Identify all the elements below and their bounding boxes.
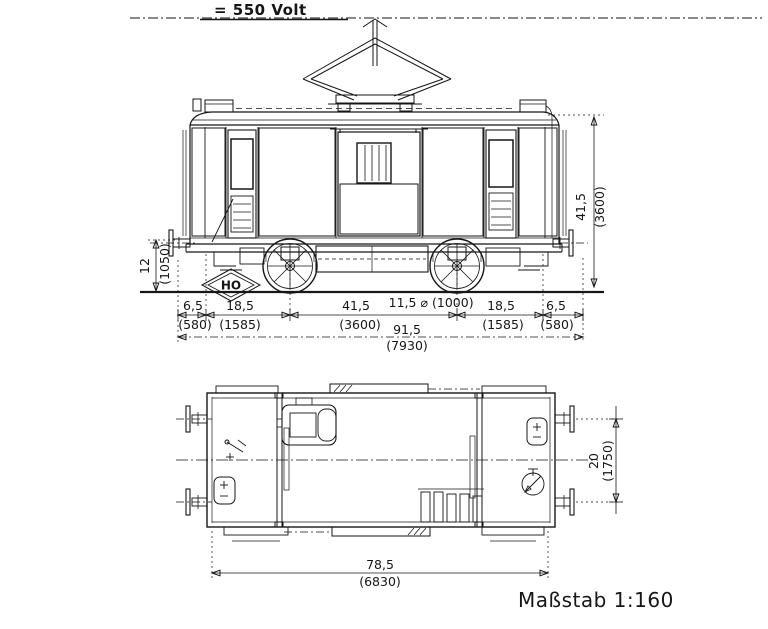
drawing-page: = 550 Volt [0, 0, 768, 629]
window-bars [365, 145, 386, 181]
left-end-door [228, 130, 256, 238]
dimension-chain-bottom: 6,5 (580) 18,5 (1585) 41,5 (3600) 11,5 ⌀… [178, 254, 583, 342]
dim-wheel-diameter-proto: (1000) [432, 295, 474, 310]
dim-overhang-left-model: 6,5 [183, 298, 203, 313]
controller [225, 440, 246, 461]
footboard-top-right [482, 386, 546, 393]
dim-buffer-height-model: 12 [137, 258, 152, 274]
dim-overhang-right-proto: (580) [540, 317, 574, 332]
seat-left [214, 477, 235, 504]
roof-stack [193, 99, 201, 111]
handbrake-wheel [522, 469, 544, 495]
end-downpipe [546, 106, 552, 238]
dim-body-height-model: 41,5 [573, 193, 588, 221]
dim-buffer-height-proto: (1050) [157, 243, 172, 285]
plan-buffer-right-bottom [555, 489, 574, 515]
step-right [524, 252, 548, 266]
dim-overall-length-model: 91,5 [393, 322, 421, 337]
ho-logo-text: HO [221, 279, 241, 293]
dim-end-axle-left-proto: (1585) [219, 317, 261, 332]
pantograph [303, 19, 451, 111]
dim-overhang-right-model: 6,5 [546, 298, 566, 313]
car-body-side [183, 99, 566, 252]
sliding-door-top [330, 384, 480, 393]
footboard-top-left [216, 386, 278, 393]
pantograph-base [336, 95, 414, 103]
dim-end-axle-left-model: 18,5 [226, 298, 254, 313]
dim-width-proto: (1750) [600, 440, 615, 482]
dim-wheelbase-proto: (3600) [339, 317, 381, 332]
plan-buffer-right-top [555, 406, 574, 432]
footboard-bottom-left [224, 527, 288, 541]
dim-wheel-diameter-model: 11,5 ⌀ [389, 295, 428, 310]
dim-overhang-left-proto: (580) [178, 317, 212, 332]
dim-wheelbase-model: 41,5 [342, 298, 370, 313]
pantograph-contact-shoe [363, 19, 387, 27]
roof-box-right [520, 100, 546, 112]
dim-overall-length-proto: (7930) [386, 338, 428, 353]
door-window [231, 139, 253, 189]
technical-drawing: = 550 Volt [0, 0, 768, 629]
dimension-buffer-height: 12 (1050) [137, 240, 176, 291]
sliding-door-bottom [284, 527, 430, 536]
voltage-label: = 550 Volt [214, 1, 307, 19]
door-window [489, 140, 513, 187]
scale-label: Maßstab 1:160 [518, 588, 674, 612]
ho-logo: HO [202, 269, 260, 301]
dim-end-axle-right-proto: (1585) [482, 317, 524, 332]
side-elevation-view: = 550 Volt [130, 1, 762, 353]
dimension-length: 78,5 (6830) [212, 531, 548, 589]
dim-length-proto: (6830) [359, 574, 401, 589]
dim-width-model: 20 [586, 453, 601, 469]
dim-body-height-proto: (3600) [592, 186, 607, 228]
footboard-bottom-right [482, 527, 544, 541]
right-end-door [486, 130, 516, 238]
step-left [214, 252, 236, 266]
dim-length-model: 78,5 [366, 557, 394, 572]
plan-view: 20 (1750) 78,5 (6830) [176, 384, 623, 589]
steps-bench [418, 489, 484, 522]
brake-cylinder [486, 248, 520, 266]
traction-motor [277, 398, 336, 445]
dim-end-axle-right-model: 18,5 [487, 298, 515, 313]
center-sliding-door [330, 129, 428, 236]
seat-right [527, 418, 547, 445]
roof-box-left [205, 100, 233, 112]
